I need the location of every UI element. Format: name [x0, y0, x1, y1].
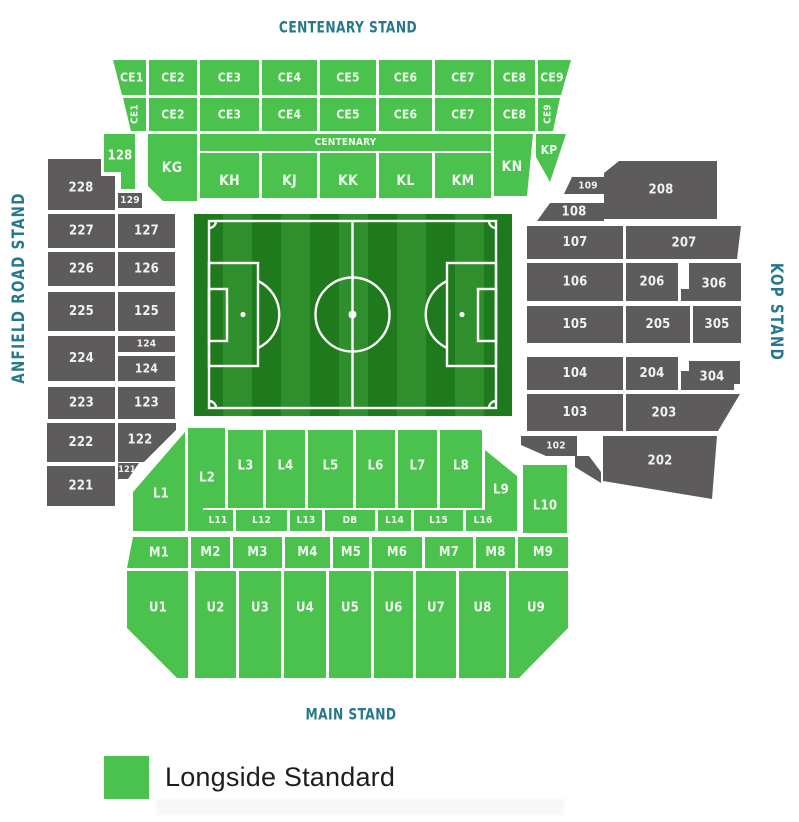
section-208: [604, 161, 717, 219]
section-ce1-upper[interactable]: [113, 60, 146, 95]
section-ce8-lower[interactable]: [494, 98, 535, 131]
section-kj[interactable]: [262, 153, 317, 198]
section-222: [47, 423, 115, 462]
section-227: [48, 214, 115, 248]
section-202: [603, 436, 717, 499]
section-m1[interactable]: [127, 537, 188, 568]
section-l4[interactable]: [266, 430, 305, 508]
section-u5[interactable]: [329, 571, 371, 678]
section-206: [626, 263, 678, 301]
section-m5[interactable]: [333, 537, 369, 568]
section-l15[interactable]: [414, 510, 463, 531]
section-l6[interactable]: [356, 430, 395, 508]
section-ce6-lower[interactable]: [379, 98, 432, 131]
section-u1[interactable]: [127, 571, 188, 678]
section-kn[interactable]: [494, 134, 533, 196]
section-ce7-upper[interactable]: [435, 60, 491, 95]
section-207: [626, 226, 741, 259]
section-ce4-lower[interactable]: [262, 98, 317, 131]
section-ce7-lower[interactable]: [435, 98, 491, 131]
section-kk[interactable]: [320, 153, 376, 198]
section-304: [681, 361, 740, 390]
legend: Longside Standard: [104, 756, 395, 799]
section-108: [537, 203, 604, 221]
section-223: [48, 387, 115, 419]
section-m2[interactable]: [191, 537, 230, 568]
football-pitch: [191, 211, 515, 419]
section-u9[interactable]: [509, 571, 568, 678]
section-ce2-lower[interactable]: [149, 98, 197, 131]
section-m6[interactable]: [372, 537, 422, 568]
section-kp[interactable]: [536, 134, 566, 182]
section-ce3-lower[interactable]: [200, 98, 259, 131]
section-203: [626, 394, 740, 431]
section-l7[interactable]: [398, 430, 437, 508]
section-m4[interactable]: [285, 537, 330, 568]
section-ce4-upper[interactable]: [262, 60, 317, 95]
section-109: [564, 177, 604, 194]
section-129: [118, 193, 142, 208]
section-ce5-lower[interactable]: [320, 98, 376, 131]
section-ce6-upper[interactable]: [379, 60, 432, 95]
section-u4[interactable]: [284, 571, 326, 678]
section-centenary-strip[interactable]: [200, 134, 491, 151]
section-127: [118, 214, 175, 248]
section-u8[interactable]: [459, 571, 506, 678]
section-107: [527, 226, 623, 259]
section-204: [626, 357, 678, 390]
section-106: [527, 263, 623, 301]
section-ce8-upper[interactable]: [494, 60, 535, 95]
section-l14[interactable]: [378, 510, 411, 531]
legend-swatch-longside-standard: [104, 756, 149, 799]
section-225: [48, 292, 115, 331]
section-205: [626, 306, 690, 343]
section-l8[interactable]: [440, 430, 482, 508]
section-m9[interactable]: [518, 537, 568, 568]
section-m7[interactable]: [425, 537, 473, 568]
seat-map-svg: CE1CE2CE3CE4CE5CE6CE7CE8CE9CE1CE2CE3CE4C…: [0, 0, 799, 822]
section-l3[interactable]: [228, 430, 263, 508]
section-ce9-upper[interactable]: [538, 60, 571, 95]
section-102: [521, 436, 577, 456]
section-u6[interactable]: [374, 571, 413, 678]
section-db[interactable]: [325, 510, 375, 531]
section-u3[interactable]: [239, 571, 281, 678]
section-l16[interactable]: [466, 510, 500, 531]
section-u7[interactable]: [416, 571, 456, 678]
section-305: [693, 306, 741, 343]
section-126: [118, 252, 175, 286]
stadium-seat-map: CENTENARY STAND ANFIELD ROAD STAND KOP S…: [0, 0, 799, 822]
section-ce3-upper[interactable]: [200, 60, 259, 95]
section-124-upper: [118, 336, 175, 352]
section-kg[interactable]: [148, 134, 197, 201]
section-121: [118, 463, 139, 479]
section-125: [118, 292, 175, 331]
section-104: [527, 357, 623, 390]
legend-label: Longside Standard: [165, 762, 395, 793]
section-l13[interactable]: [290, 510, 322, 531]
section-123: [118, 387, 175, 419]
section-kop-corner-wedge: [575, 456, 601, 483]
section-m3[interactable]: [233, 537, 282, 568]
section-u2[interactable]: [195, 571, 236, 678]
section-km[interactable]: [435, 153, 491, 198]
section-124-lower: [118, 356, 175, 381]
section-kl[interactable]: [379, 153, 432, 198]
section-m8[interactable]: [476, 537, 515, 568]
faint-watermark: [156, 799, 564, 815]
section-ce2-upper[interactable]: [149, 60, 197, 95]
section-l11[interactable]: [203, 510, 233, 531]
section-kh[interactable]: [200, 153, 259, 198]
section-ce1-lower[interactable]: [123, 98, 146, 131]
section-103: [527, 394, 623, 431]
section-ce5-upper[interactable]: [320, 60, 376, 95]
section-l5[interactable]: [308, 430, 353, 508]
section-ce9-lower[interactable]: [538, 98, 560, 131]
section-105: [527, 306, 623, 343]
section-221: [47, 466, 115, 506]
section-l10[interactable]: [523, 465, 567, 533]
section-224: [48, 336, 115, 381]
section-l12[interactable]: [236, 510, 287, 531]
section-306: [681, 263, 741, 301]
section-226: [48, 252, 115, 286]
